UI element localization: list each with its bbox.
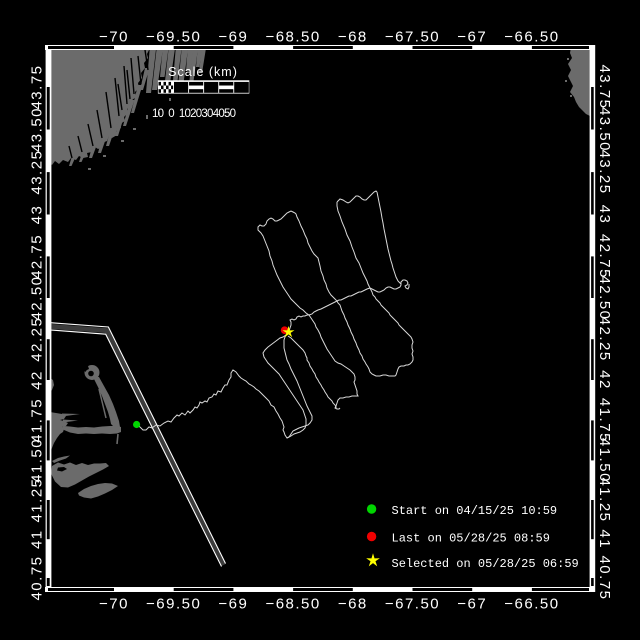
svg-text:−68: −68: [338, 29, 368, 46]
svg-text:−67: −67: [457, 29, 487, 46]
svg-text:Last on 05/28/25 08:59: Last on 05/28/25 08:59: [392, 532, 550, 546]
svg-text:10 0 1020304050: 10 0 1020304050: [152, 108, 236, 120]
svg-text:41.50: 41.50: [596, 438, 613, 483]
svg-text:43.50: 43.50: [596, 107, 613, 152]
svg-text:−69: −69: [218, 596, 248, 613]
svg-text:−69.50: −69.50: [146, 596, 201, 613]
svg-text:42.75: 42.75: [596, 234, 613, 279]
svg-text:40.75: 40.75: [596, 555, 613, 600]
svg-text:−68: −68: [338, 596, 368, 613]
svg-text:43: 43: [29, 205, 46, 225]
svg-text:−67.50: −67.50: [385, 596, 440, 613]
svg-text:41.75: 41.75: [596, 398, 613, 443]
svg-text:41.50: 41.50: [29, 438, 46, 483]
svg-text:42: 42: [29, 370, 46, 390]
svg-text:−67.50: −67.50: [385, 29, 440, 46]
svg-text:43.25: 43.25: [596, 150, 613, 195]
svg-text:−67: −67: [457, 596, 487, 613]
svg-text:41.25: 41.25: [596, 477, 613, 522]
svg-text:43.25: 43.25: [29, 150, 46, 195]
svg-text:42.25: 42.25: [29, 317, 46, 362]
svg-text:42: 42: [596, 370, 613, 390]
svg-text:−66.50: −66.50: [504, 29, 559, 46]
svg-text:41.25: 41.25: [29, 477, 46, 522]
svg-text:−68.50: −68.50: [265, 29, 320, 46]
svg-text:Start on 04/15/25 10:59: Start on 04/15/25 10:59: [392, 504, 558, 518]
svg-text:41: 41: [29, 529, 46, 549]
svg-text:−69: −69: [218, 29, 248, 46]
svg-text:42.50: 42.50: [596, 275, 613, 320]
svg-text:−70: −70: [99, 596, 129, 613]
svg-text:40.75: 40.75: [29, 555, 46, 600]
svg-text:Scale (km): Scale (km): [168, 65, 238, 79]
svg-text:−66.50: −66.50: [504, 596, 559, 613]
svg-text:41.75: 41.75: [29, 398, 46, 443]
svg-text:−70: −70: [99, 29, 129, 46]
svg-text:Selected on 05/28/25 06:59: Selected on 05/28/25 06:59: [392, 557, 579, 571]
svg-text:−68.50: −68.50: [265, 596, 320, 613]
svg-text:42.75: 42.75: [29, 234, 46, 279]
svg-text:42.50: 42.50: [29, 275, 46, 320]
svg-text:43.75: 43.75: [596, 64, 613, 109]
svg-text:−69.50: −69.50: [146, 29, 201, 46]
svg-text:42.25: 42.25: [596, 317, 613, 362]
svg-text:43.50: 43.50: [29, 107, 46, 152]
svg-text:43: 43: [596, 205, 613, 225]
svg-text:43.75: 43.75: [29, 64, 46, 109]
svg-text:41: 41: [596, 529, 613, 549]
